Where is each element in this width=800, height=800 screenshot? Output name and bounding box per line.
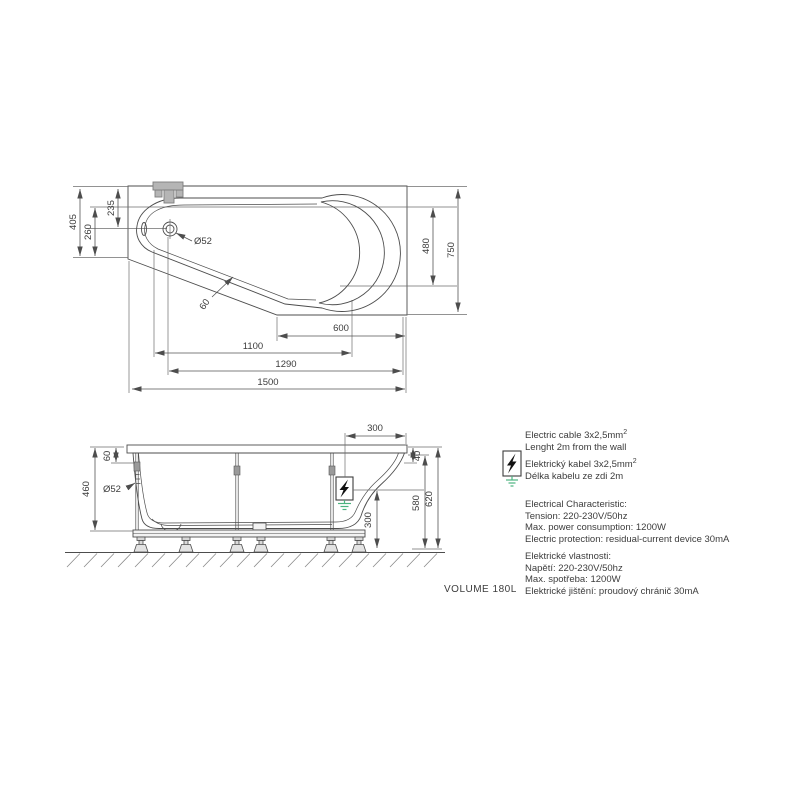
note-electrical-cz: Elektrické vlastnosti: Napětí: 220-230V/… bbox=[525, 551, 699, 597]
technical-drawing-page: 405 260 235 480 750 600 1100 1290 1500 6… bbox=[0, 0, 800, 800]
dim-label-580: 580 bbox=[411, 495, 422, 511]
dim-label-1500: 1500 bbox=[257, 377, 278, 388]
dim-label-260: 260 bbox=[83, 224, 94, 240]
bathtub-drawing: 405 260 235 480 750 600 1100 1290 1500 6… bbox=[0, 0, 800, 800]
electrical-en-power: Max. power consumption: 1200W bbox=[525, 522, 729, 534]
ground-symbol-icon bbox=[338, 500, 351, 510]
superscript: 2 bbox=[633, 458, 637, 465]
electrical-en-title: Electrical Characteristic: bbox=[525, 499, 729, 511]
dim-label-600: 600 bbox=[333, 323, 349, 334]
dim-label-620: 620 bbox=[424, 491, 435, 507]
overflow-slot bbox=[142, 223, 147, 236]
dim-label-drain-top: Ø52 bbox=[194, 236, 212, 247]
dim-label-300-bottom: 300 bbox=[363, 512, 374, 528]
side-view: 460 60 Ø52 300 40 580 620 300 bbox=[65, 423, 445, 567]
dim-label-480: 480 bbox=[421, 238, 432, 254]
dim-label-750: 750 bbox=[446, 242, 457, 258]
note-cable-en-line1: Electric cable 3x2,5mm2 bbox=[525, 430, 627, 442]
dim-label-drain-side: Ø52 bbox=[103, 484, 121, 495]
tub-basin-rim bbox=[137, 194, 401, 311]
dim-label-1100: 1100 bbox=[243, 341, 263, 352]
electrical-cz-power: Max. spotřeba: 1200W bbox=[525, 574, 699, 586]
note-text: Elektrický kabel 3x2,5mm bbox=[525, 459, 633, 470]
dim-label-60-rim: 60 bbox=[197, 297, 212, 312]
extension-lines-top-view bbox=[73, 187, 467, 394]
note-cable-cz-line2: Délka kabelu ze zdi 2m bbox=[525, 471, 623, 483]
electrical-cz-title: Elektrické vlastnosti: bbox=[525, 551, 699, 563]
headrest-crescent bbox=[319, 201, 384, 305]
electrical-en-tension: Tension: 220-230V/50hz bbox=[525, 511, 729, 523]
electrical-en-protection: Electric protection: residual-current de… bbox=[525, 534, 729, 546]
electrical-cz-tension: Napětí: 220-230V/50hz bbox=[525, 563, 699, 575]
drain bbox=[163, 219, 177, 239]
note-text: Electric cable 3x2,5mm bbox=[525, 430, 623, 441]
floor-hatching bbox=[65, 553, 445, 568]
center-bracket bbox=[253, 523, 266, 530]
dim-label-460: 460 bbox=[81, 481, 92, 497]
dim-label-40: 40 bbox=[412, 451, 423, 462]
volume-label: VOLUME 180L bbox=[444, 584, 517, 595]
note-cable-cz-line1: Elektrický kabel 3x2,5mm2 bbox=[525, 459, 637, 471]
dim-label-1290: 1290 bbox=[275, 359, 296, 370]
dim-label-405: 405 bbox=[68, 214, 79, 230]
tub-rim bbox=[127, 445, 407, 453]
tub-top-outline bbox=[128, 186, 407, 315]
ground-symbol-icon bbox=[506, 476, 518, 486]
note-cable-en-line2: Lenght 2m from the wall bbox=[525, 442, 626, 454]
faucet-fixture bbox=[153, 182, 183, 203]
dim-label-300-top: 300 bbox=[367, 423, 383, 434]
dimension-labels-side-view: 460 60 Ø52 300 40 580 620 300 bbox=[81, 423, 435, 528]
dim-label-60-side: 60 bbox=[102, 451, 113, 462]
support-feet bbox=[134, 537, 366, 552]
tub-basin-floor bbox=[145, 204, 317, 300]
electrical-cz-protection: Elektrické jištění: proudový chránič 30m… bbox=[525, 586, 699, 598]
superscript: 2 bbox=[623, 429, 627, 436]
dim-label-235: 235 bbox=[106, 200, 117, 216]
note-electrical-en: Electrical Characteristic: Tension: 220-… bbox=[525, 499, 729, 545]
electrical-box bbox=[336, 477, 353, 510]
top-view: 405 260 235 480 750 600 1100 1290 1500 6… bbox=[68, 182, 467, 393]
electrical-symbol-legend bbox=[503, 451, 521, 486]
dimension-lines-top-view bbox=[80, 189, 458, 389]
